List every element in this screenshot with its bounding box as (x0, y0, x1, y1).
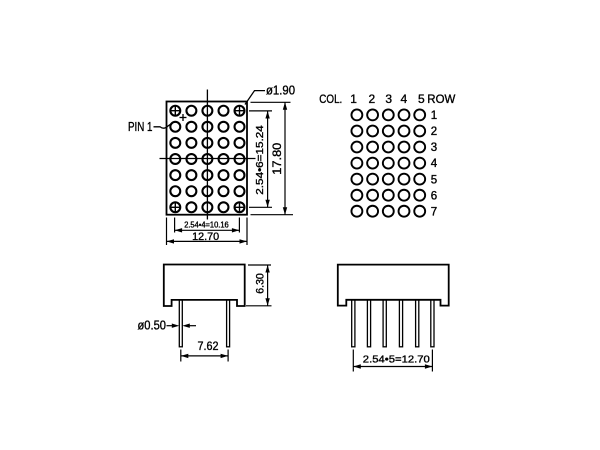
svg-text:6.30: 6.30 (255, 273, 267, 294)
svg-text:2: 2 (431, 126, 437, 138)
svg-text:6: 6 (431, 190, 437, 202)
svg-text:PIN 1: PIN 1 (128, 120, 153, 134)
svg-text:3: 3 (431, 142, 437, 154)
svg-text:2.54•6=15.24: 2.54•6=15.24 (255, 125, 266, 195)
svg-text:ø0.50: ø0.50 (138, 319, 167, 333)
svg-text:7.62: 7.62 (198, 339, 219, 353)
svg-text:4: 4 (431, 158, 438, 170)
svg-text:ROW: ROW (427, 92, 456, 106)
svg-text:COL.: COL. (319, 92, 342, 106)
svg-text:12.70: 12.70 (192, 231, 219, 243)
svg-text:7: 7 (431, 206, 437, 218)
svg-text:ø1.90: ø1.90 (266, 84, 295, 98)
svg-text:2.54•4=10.16: 2.54•4=10.16 (184, 221, 229, 230)
svg-text:2.54•5=12.70: 2.54•5=12.70 (363, 354, 430, 366)
svg-text:5: 5 (418, 92, 425, 106)
svg-text:17.80: 17.80 (272, 143, 284, 175)
svg-text:4: 4 (401, 92, 408, 106)
svg-text:2: 2 (368, 92, 375, 106)
svg-text:5: 5 (431, 174, 437, 186)
svg-text:1: 1 (431, 110, 437, 122)
svg-text:1: 1 (350, 92, 357, 106)
svg-text:3: 3 (385, 92, 392, 106)
